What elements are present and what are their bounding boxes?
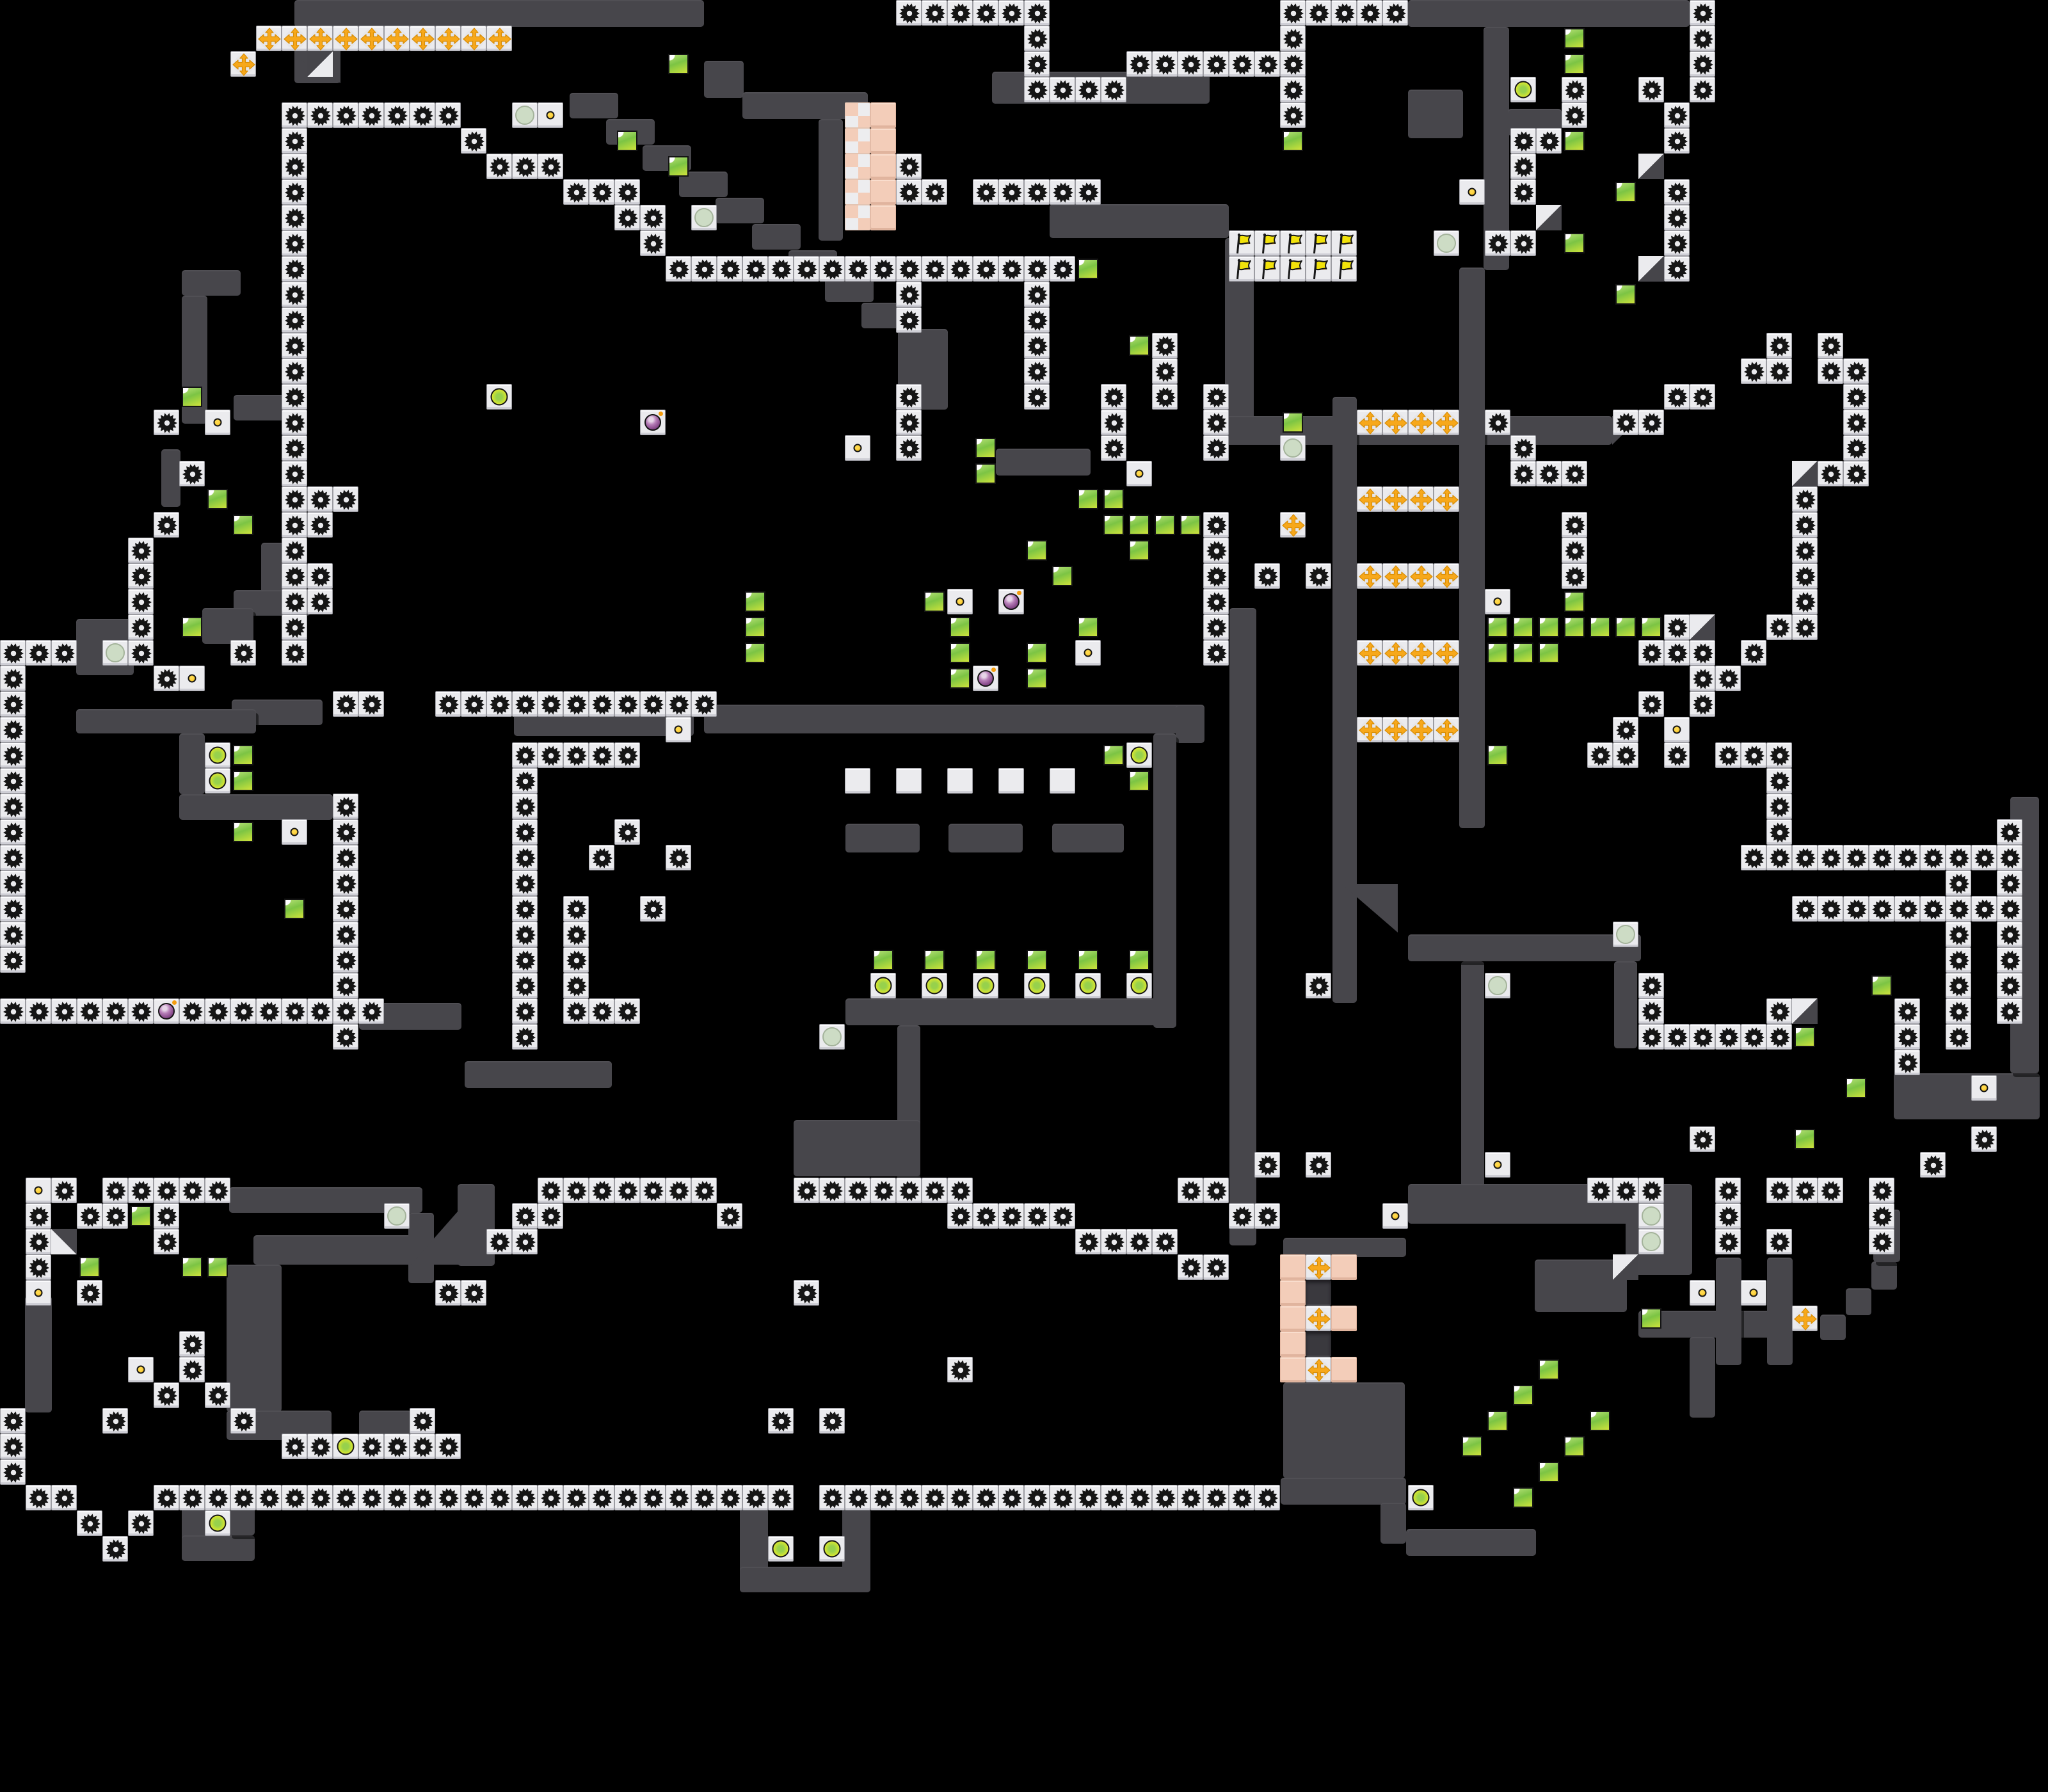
tile-small-yellow-dot	[1971, 1075, 1997, 1101]
tile-saw-blade-hazard	[1254, 1485, 1280, 1510]
saw-blade-icon	[1050, 180, 1076, 205]
tile-saw-blade-hazard	[154, 410, 179, 435]
tile-saw-blade-hazard	[1946, 1024, 1971, 1050]
checkpoint-flag-icon	[1229, 257, 1255, 282]
tile-saw-blade-hazard	[1024, 77, 1050, 102]
tile-saw-blade-hazard	[1715, 1203, 1741, 1229]
empty-socket-icon	[106, 643, 125, 662]
saw-blade-icon	[1204, 410, 1229, 436]
saw-blade-icon	[129, 589, 154, 615]
tile-saw-blade-hazard	[1690, 77, 1715, 102]
saw-blade-icon	[282, 308, 308, 333]
saw-blade-icon	[1690, 692, 1716, 717]
tile-large-yellow-orb	[205, 742, 230, 768]
wall-block	[704, 705, 1198, 733]
saw-blade-icon	[231, 999, 257, 1025]
saw-blade-icon	[1793, 1178, 1818, 1204]
tile-saw-blade-hazard	[973, 179, 998, 205]
tile-saw-blade-hazard	[1715, 1024, 1741, 1050]
tile-saw-blade-hazard	[614, 1485, 640, 1510]
empty-socket-icon	[1437, 234, 1456, 253]
saw-blade-icon	[385, 1485, 410, 1511]
saw-blade-icon	[129, 999, 154, 1025]
tile-green-collectible	[922, 589, 947, 614]
tile-saw-blade-hazard	[1024, 282, 1050, 307]
wall-block	[1846, 1288, 1871, 1315]
tile-saw-blade-hazard	[896, 384, 922, 410]
tile-bomb-pickup	[640, 410, 666, 435]
tile-saw-blade-hazard	[768, 1485, 794, 1510]
tile-saw-blade-hazard	[1562, 538, 1587, 563]
saw-blade-icon	[436, 692, 461, 717]
tile-saw-blade-hazard	[947, 0, 973, 26]
tile-saw-blade-hazard	[333, 486, 358, 512]
tile-saw-blade-hazard	[333, 922, 358, 947]
wall-block	[1767, 1258, 1793, 1365]
tile-saw-blade-hazard	[333, 794, 358, 819]
tile-saw-blade-hazard	[1536, 461, 1562, 486]
tile-large-yellow-orb	[205, 768, 230, 794]
saw-blade-icon	[692, 1178, 717, 1204]
tile-saw-blade-hazard	[461, 128, 486, 154]
yellow-orb-icon	[1028, 977, 1046, 995]
empty-socket-icon	[1642, 1232, 1661, 1251]
green-collectible-icon	[1129, 950, 1149, 970]
saw-blade-icon	[1690, 641, 1716, 666]
tile-omni-arrow-pad	[1357, 717, 1382, 742]
tile-checkpoint-flag	[1229, 230, 1254, 256]
tile-saw-blade-hazard	[1869, 1229, 1894, 1254]
saw-blade-icon	[973, 257, 999, 282]
tile-green-collectible	[922, 947, 947, 973]
tile-saw-blade-hazard	[1869, 896, 1894, 922]
tile-saw-blade-hazard	[1050, 256, 1075, 282]
tile-saw-blade-hazard	[896, 1485, 922, 1510]
tile-saw-blade-hazard	[794, 256, 819, 282]
tile-empty-socket	[512, 102, 538, 128]
saw-blade-icon	[410, 1434, 436, 1460]
tile-saw-blade-hazard	[1946, 896, 1971, 922]
tile-saw-blade-hazard	[1562, 102, 1587, 128]
tile-saw-blade-hazard	[154, 1485, 179, 1510]
tile-saw-blade-hazard	[1664, 742, 1690, 768]
saw-blade-icon	[257, 999, 282, 1025]
saw-blade-icon	[1690, 77, 1716, 103]
tile-saw-blade-hazard	[282, 128, 307, 154]
saw-blade-icon	[1562, 513, 1588, 538]
tile-saw-blade-hazard	[461, 1280, 486, 1306]
saw-blade-icon	[564, 692, 589, 717]
saw-blade-icon	[1895, 999, 1921, 1025]
saw-blade-icon	[1844, 897, 1869, 922]
tile-saw-blade-hazard	[870, 1485, 896, 1510]
saw-blade-icon	[1562, 77, 1588, 103]
green-collectible-icon	[1052, 566, 1073, 586]
tile-omni-arrow-pad	[1306, 1306, 1331, 1331]
tile-checkpoint-flag	[1331, 230, 1357, 256]
yellow-dot-icon	[1750, 1289, 1758, 1297]
tile-saw-blade-hazard	[717, 256, 742, 282]
tile-saw-blade-hazard	[538, 1485, 563, 1510]
tile-empty-socket	[102, 640, 128, 666]
tile-saw-blade-hazard	[1690, 384, 1715, 410]
saw-blade-icon	[282, 257, 308, 282]
yellow-orb-icon	[1080, 977, 1097, 995]
tile-saw-blade-hazard	[1843, 358, 1869, 384]
omni-arrow-icon	[1434, 410, 1460, 436]
tile-saw-blade-hazard	[1664, 128, 1690, 154]
saw-blade-icon	[1153, 52, 1178, 77]
tile-saw-blade-hazard	[0, 870, 26, 896]
tile-small-yellow-dot	[1459, 179, 1485, 205]
saw-blade-icon	[1767, 743, 1793, 769]
saw-blade-icon	[1076, 1229, 1101, 1255]
green-collectible-icon	[950, 617, 970, 637]
saw-blade-icon	[1537, 129, 1562, 154]
tile-saw-blade-hazard	[51, 998, 77, 1024]
tile-saw-blade-hazard	[1766, 998, 1792, 1024]
saw-blade-icon	[564, 922, 589, 948]
tile-saw-blade-hazard	[870, 256, 896, 282]
tile-saw-blade-hazard	[307, 102, 333, 128]
tile-saw-blade-hazard	[102, 1178, 128, 1203]
tile-saw-blade-hazard	[282, 410, 307, 435]
saw-blade-icon	[717, 1204, 743, 1229]
tile-saw-blade-hazard	[1280, 26, 1306, 51]
saw-blade-icon	[973, 1, 999, 26]
tile-saw-blade-hazard	[589, 179, 614, 205]
yellow-dot-icon	[854, 444, 862, 452]
tile-saw-blade-hazard	[307, 486, 333, 512]
tile-saw-blade-hazard	[128, 1178, 154, 1203]
omni-arrow-icon	[487, 26, 513, 52]
tile-saw-blade-hazard	[1997, 922, 2022, 947]
empty-socket-icon	[1488, 976, 1507, 995]
saw-blade-icon	[1665, 180, 1690, 205]
saw-blade-icon	[1101, 410, 1127, 436]
tile-pink-checkered-block	[845, 179, 870, 205]
saw-blade-icon	[999, 180, 1025, 205]
omni-arrow-icon	[1306, 1306, 1332, 1332]
tile-saw-blade-hazard	[1946, 870, 1971, 896]
tile-saw-blade-hazard	[1792, 563, 1818, 589]
tile-saw-blade-hazard	[128, 614, 154, 640]
tile-dark-inset-block	[1306, 1280, 1331, 1306]
tile-saw-blade-hazard	[205, 1382, 230, 1408]
saw-blade-icon	[1997, 897, 2023, 922]
tile-saw-blade-hazard	[538, 154, 563, 179]
tile-omni-arrow-pad	[410, 26, 435, 51]
tile-saw-blade-hazard	[1510, 230, 1536, 256]
tile-saw-blade-hazard	[1229, 1485, 1254, 1510]
saw-blade-icon	[1025, 333, 1050, 359]
saw-blade-icon	[1204, 564, 1229, 589]
tile-saw-blade-hazard	[1562, 77, 1587, 102]
tile-saw-blade-hazard	[26, 1254, 51, 1280]
wall-block	[227, 1265, 282, 1412]
tile-saw-blade-hazard	[666, 1178, 691, 1203]
tile-green-collectible	[1638, 614, 1664, 640]
tile-saw-blade-hazard	[358, 691, 384, 717]
tile-saw-blade-hazard	[1382, 0, 1408, 26]
tile-green-collectible	[205, 1254, 230, 1280]
tile-saw-blade-hazard	[1075, 1229, 1101, 1254]
green-collectible-icon	[1155, 515, 1175, 535]
saw-blade-icon	[333, 897, 359, 922]
tile-saw-blade-hazard	[384, 102, 410, 128]
saw-blade-icon	[282, 282, 308, 308]
yellow-dot-icon	[35, 1187, 43, 1195]
saw-blade-icon	[1153, 359, 1178, 385]
tile-saw-blade-hazard	[230, 1408, 256, 1434]
omni-arrow-icon	[1357, 410, 1383, 436]
yellow-dot-icon	[956, 598, 964, 606]
tile-saw-blade-hazard	[1690, 0, 1715, 26]
tile-saw-blade-hazard	[538, 691, 563, 717]
saw-blade-icon	[1844, 385, 1869, 410]
green-collectible-icon	[1513, 1487, 1533, 1508]
tile-saw-blade-hazard	[1664, 1024, 1690, 1050]
omni-arrow-icon	[308, 26, 333, 52]
tile-saw-blade-hazard	[998, 1203, 1024, 1229]
empty-socket-icon	[1616, 925, 1635, 944]
wall-block	[1820, 1315, 1846, 1340]
tile-checkpoint-flag	[1306, 230, 1331, 256]
saw-blade-icon	[513, 999, 538, 1025]
tile-dark-inset-block	[1306, 1331, 1331, 1357]
saw-blade-icon	[1, 820, 26, 845]
saw-blade-icon	[538, 1204, 564, 1229]
tile-omni-arrow-pad	[1434, 640, 1459, 666]
saw-blade-icon	[129, 564, 154, 589]
tile-omni-arrow-pad	[1408, 410, 1434, 435]
green-collectible-icon	[207, 1257, 228, 1277]
saw-blade-icon	[180, 1485, 205, 1511]
tile-saw-blade-hazard	[1562, 563, 1587, 589]
tile-saw-blade-hazard	[589, 998, 614, 1024]
saw-blade-icon	[948, 257, 973, 282]
tile-saw-blade-hazard	[896, 307, 922, 333]
tile-saw-blade-hazard	[998, 256, 1024, 282]
yellow-orb-icon	[1515, 81, 1532, 99]
saw-blade-icon	[1921, 845, 1946, 871]
tile-saw-blade-hazard	[1101, 1485, 1126, 1510]
saw-blade-icon	[1, 922, 26, 948]
saw-blade-icon	[513, 1025, 538, 1050]
wall-block	[1281, 1478, 1406, 1505]
tile-saw-blade-hazard	[1024, 179, 1050, 205]
wall-block	[182, 270, 241, 296]
saw-blade-icon	[897, 308, 922, 333]
tile-white-block	[896, 768, 922, 794]
tile-bomb-pickup	[998, 589, 1024, 614]
saw-blade-icon	[1997, 871, 2023, 897]
tile-saw-blade-hazard	[282, 179, 307, 205]
saw-blade-icon	[385, 1434, 410, 1460]
saw-blade-icon	[1332, 1, 1357, 26]
green-collectible-icon	[1513, 643, 1533, 663]
saw-blade-icon	[1946, 845, 1972, 871]
tile-omni-arrow-pad	[1382, 410, 1408, 435]
saw-blade-icon	[436, 1434, 461, 1460]
saw-blade-icon	[1997, 948, 2023, 973]
saw-blade-icon	[1, 666, 26, 692]
empty-socket-icon	[694, 208, 714, 227]
saw-blade-icon	[1818, 461, 1844, 487]
omni-arrow-icon	[410, 26, 436, 52]
tile-checkpoint-flag	[1306, 256, 1331, 282]
tile-saw-blade-hazard	[0, 819, 26, 845]
saw-blade-icon	[1869, 897, 1895, 922]
saw-blade-icon	[282, 154, 308, 180]
tile-green-collectible	[77, 1254, 102, 1280]
wall-block	[161, 449, 180, 507]
tile-saw-blade-hazard	[563, 973, 589, 998]
empty-socket-icon	[1283, 438, 1302, 458]
saw-blade-icon	[1946, 871, 1972, 897]
omni-arrow-icon	[1306, 1255, 1332, 1281]
tile-pink-block	[1331, 1306, 1357, 1331]
saw-blade-icon	[1153, 1485, 1178, 1511]
saw-blade-icon	[897, 1485, 922, 1511]
saw-blade-icon	[1818, 1178, 1844, 1204]
green-collectible-icon	[975, 438, 996, 458]
tile-saw-blade-hazard	[1050, 179, 1075, 205]
tile-saw-blade-hazard	[1818, 358, 1843, 384]
bomb-fuse-icon	[172, 1000, 177, 1005]
tile-pink-block	[870, 102, 896, 128]
saw-blade-icon	[1511, 461, 1537, 487]
saw-blade-icon	[1306, 564, 1332, 589]
tile-saw-blade-hazard	[282, 589, 307, 614]
tile-saw-blade-hazard	[333, 819, 358, 845]
saw-blade-icon	[1767, 820, 1793, 845]
tile-saw-blade-hazard	[1485, 230, 1510, 256]
tile-large-yellow-orb	[1126, 973, 1152, 998]
saw-blade-icon	[922, 1485, 948, 1511]
tile-green-collectible	[1510, 614, 1536, 640]
saw-blade-icon	[1946, 922, 1972, 948]
saw-blade-icon	[1204, 615, 1229, 641]
saw-blade-icon	[717, 1485, 743, 1511]
saw-blade-icon	[513, 794, 538, 820]
tile-saw-blade-hazard	[461, 691, 486, 717]
saw-blade-icon	[666, 692, 692, 717]
slope-tile	[1638, 154, 1664, 179]
tile-large-yellow-orb	[205, 1510, 230, 1536]
saw-blade-icon	[513, 897, 538, 922]
tile-saw-blade-hazard	[1843, 896, 1869, 922]
wall-block	[1153, 733, 1176, 1028]
tile-saw-blade-hazard	[794, 1280, 819, 1306]
saw-blade-icon	[1972, 1127, 1997, 1153]
saw-blade-icon	[282, 513, 308, 538]
saw-blade-icon	[1025, 1, 1050, 26]
tile-saw-blade-hazard	[282, 358, 307, 384]
checkpoint-flag-icon	[1306, 231, 1332, 257]
tile-saw-blade-hazard	[1203, 589, 1229, 614]
tile-large-yellow-orb	[1126, 742, 1152, 768]
tile-saw-blade-hazard	[179, 1331, 205, 1357]
tile-saw-blade-hazard	[26, 1229, 51, 1254]
tile-saw-blade-hazard	[1741, 358, 1766, 384]
tile-saw-blade-hazard	[1766, 845, 1792, 870]
tile-saw-blade-hazard	[1024, 384, 1050, 410]
tile-green-collectible	[973, 461, 998, 486]
tile-saw-blade-hazard	[1664, 384, 1690, 410]
tile-saw-blade-hazard	[1818, 1178, 1843, 1203]
saw-blade-icon	[641, 205, 666, 231]
tile-green-collectible	[1075, 486, 1101, 512]
saw-blade-icon	[897, 410, 922, 436]
tile-green-collectible	[1280, 410, 1306, 435]
saw-blade-icon	[589, 1485, 615, 1511]
tile-saw-blade-hazard	[1024, 1485, 1050, 1510]
tile-saw-blade-hazard	[922, 0, 947, 26]
saw-blade-icon	[1639, 1025, 1665, 1050]
tile-large-yellow-orb	[768, 1536, 794, 1562]
tile-saw-blade-hazard	[666, 691, 691, 717]
tile-large-yellow-orb	[486, 384, 512, 410]
saw-blade-icon	[103, 1204, 129, 1229]
tile-saw-blade-hazard	[1971, 896, 1997, 922]
saw-blade-icon	[461, 1485, 487, 1511]
saw-blade-icon	[308, 589, 333, 615]
tile-saw-blade-hazard	[1280, 0, 1306, 26]
saw-blade-icon	[1229, 52, 1255, 77]
tile-green-collectible	[1485, 640, 1510, 666]
tile-saw-blade-hazard	[896, 435, 922, 461]
tile-green-collectible	[1638, 1306, 1664, 1331]
tile-saw-blade-hazard	[973, 1485, 998, 1510]
omni-arrow-icon	[1409, 410, 1434, 436]
saw-blade-icon	[77, 1204, 103, 1229]
green-collectible-icon	[1564, 1436, 1585, 1457]
tile-omni-arrow-pad	[486, 26, 512, 51]
saw-blade-icon	[103, 999, 129, 1025]
green-collectible-icon	[182, 617, 202, 637]
tile-saw-blade-hazard	[1587, 742, 1613, 768]
tile-saw-blade-hazard	[1894, 896, 1920, 922]
saw-blade-icon	[1, 717, 26, 743]
tile-saw-blade-hazard	[307, 563, 333, 589]
saw-blade-icon	[1818, 359, 1844, 385]
wall-block	[842, 1503, 870, 1592]
saw-blade-icon	[205, 1178, 231, 1204]
tile-saw-blade-hazard	[691, 1178, 717, 1203]
saw-blade-icon	[1767, 615, 1793, 641]
omni-arrow-icon	[333, 26, 359, 52]
tile-saw-blade-hazard	[230, 640, 256, 666]
wall-block	[1052, 824, 1124, 852]
saw-blade-icon	[1997, 973, 2023, 999]
tile-green-collectible	[1562, 614, 1587, 640]
tile-green-collectible	[1562, 128, 1587, 154]
tile-large-yellow-orb	[1510, 77, 1536, 102]
wall-block	[202, 608, 253, 644]
checkpoint-flag-icon	[1281, 257, 1306, 282]
tile-saw-blade-hazard	[1741, 845, 1766, 870]
saw-blade-icon	[333, 820, 359, 845]
tile-green-collectible	[1050, 563, 1075, 589]
tile-green-collectible	[1510, 1485, 1536, 1510]
wall-block	[1408, 934, 1641, 961]
tile-saw-blade-hazard	[717, 1203, 742, 1229]
saw-blade-icon	[1, 743, 26, 769]
tile-saw-blade-hazard	[410, 1408, 435, 1434]
tile-pink-checkered-block	[845, 205, 870, 230]
tile-white-block	[1050, 768, 1075, 794]
